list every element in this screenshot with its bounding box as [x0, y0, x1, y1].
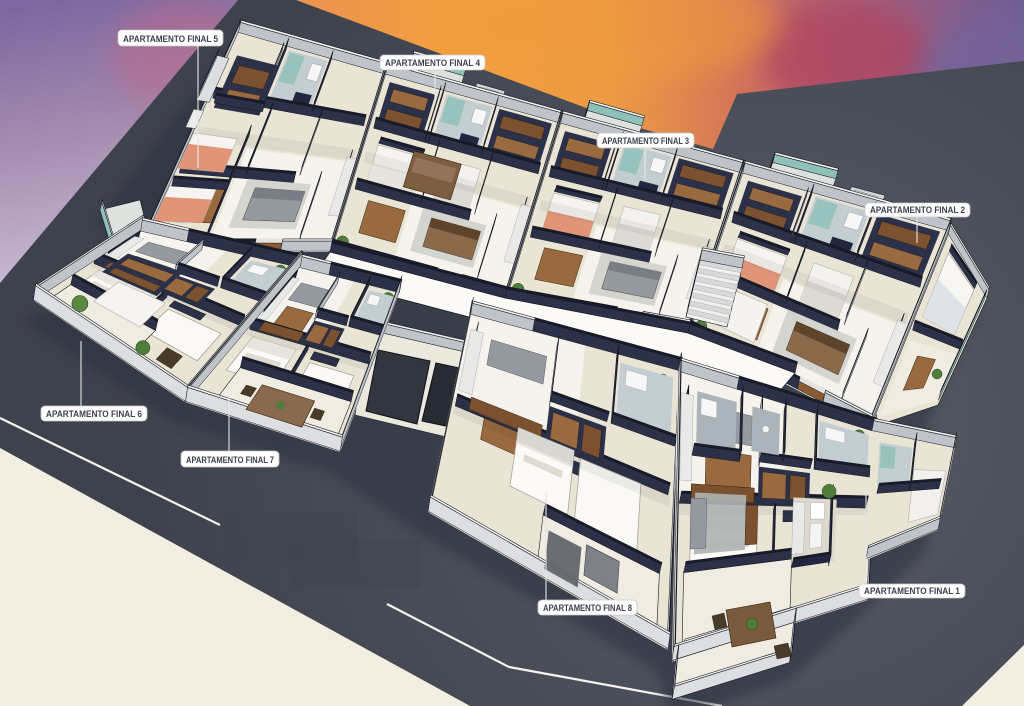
- svg-text:APARTAMENTO FINAL 4: APARTAMENTO FINAL 4: [385, 58, 481, 69]
- svg-text:APARTAMENTO FINAL 5: APARTAMENTO FINAL 5: [123, 34, 219, 45]
- svg-text:APARTAMENTO FINAL 3: APARTAMENTO FINAL 3: [602, 136, 689, 147]
- svg-text:APARTAMENTO FINAL 7: APARTAMENTO FINAL 7: [186, 455, 274, 466]
- svg-text:APARTAMENTO FINAL 6: APARTAMENTO FINAL 6: [46, 409, 142, 420]
- svg-text:APARTAMENTO FINAL 8: APARTAMENTO FINAL 8: [543, 603, 632, 614]
- svg-text:APARTAMENTO FINAL 2: APARTAMENTO FINAL 2: [870, 205, 965, 216]
- svg-text:APARTAMENTO FINAL 1: APARTAMENTO FINAL 1: [864, 586, 961, 597]
